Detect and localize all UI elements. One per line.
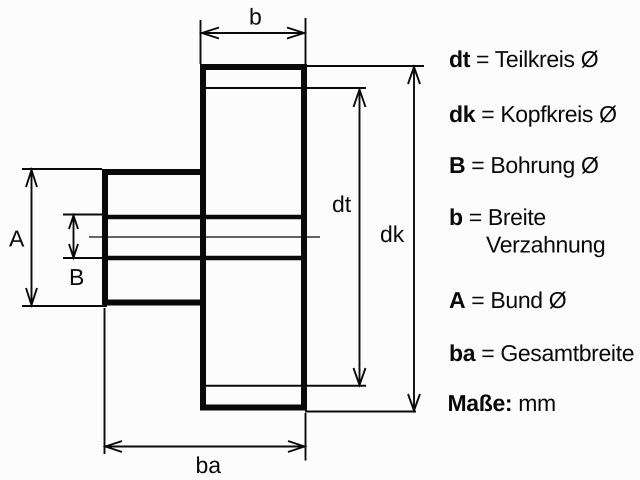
svg-text:b: b <box>249 4 262 30</box>
svg-text:ba = Gesamtbreite: ba = Gesamtbreite <box>449 340 634 366</box>
svg-text:Verzahnung: Verzahnung <box>486 232 605 258</box>
svg-text:A = Bund Ø: A = Bund Ø <box>449 287 567 313</box>
svg-text:dt = Teilkreis Ø: dt = Teilkreis Ø <box>449 46 599 72</box>
svg-text:dk = Kopfkreis Ø: dk = Kopfkreis Ø <box>449 101 617 127</box>
svg-text:ba: ba <box>196 452 222 478</box>
svg-text:dk: dk <box>380 221 405 247</box>
svg-text:B: B <box>69 264 84 290</box>
svg-text:B = Bohrung Ø: B = Bohrung Ø <box>449 152 599 178</box>
svg-text:b = Breite: b = Breite <box>449 204 546 230</box>
svg-text:A: A <box>9 226 25 252</box>
svg-text:dt: dt <box>332 191 352 217</box>
svg-text:Maße: mm: Maße: mm <box>448 390 556 416</box>
